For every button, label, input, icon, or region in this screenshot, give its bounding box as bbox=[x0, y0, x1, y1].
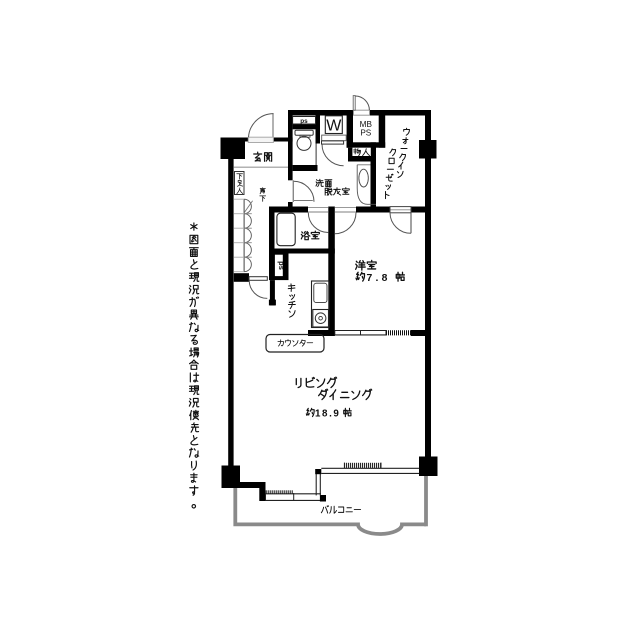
svg-text:ps: ps bbox=[300, 118, 308, 125]
svg-text:ps: ps bbox=[277, 261, 286, 270]
svg-text:PS: PS bbox=[360, 129, 371, 138]
svg-text:W: W bbox=[326, 117, 342, 134]
svg-text:18.9: 18.9 bbox=[315, 408, 340, 419]
svg-text:7.8: 7.8 bbox=[367, 273, 391, 284]
